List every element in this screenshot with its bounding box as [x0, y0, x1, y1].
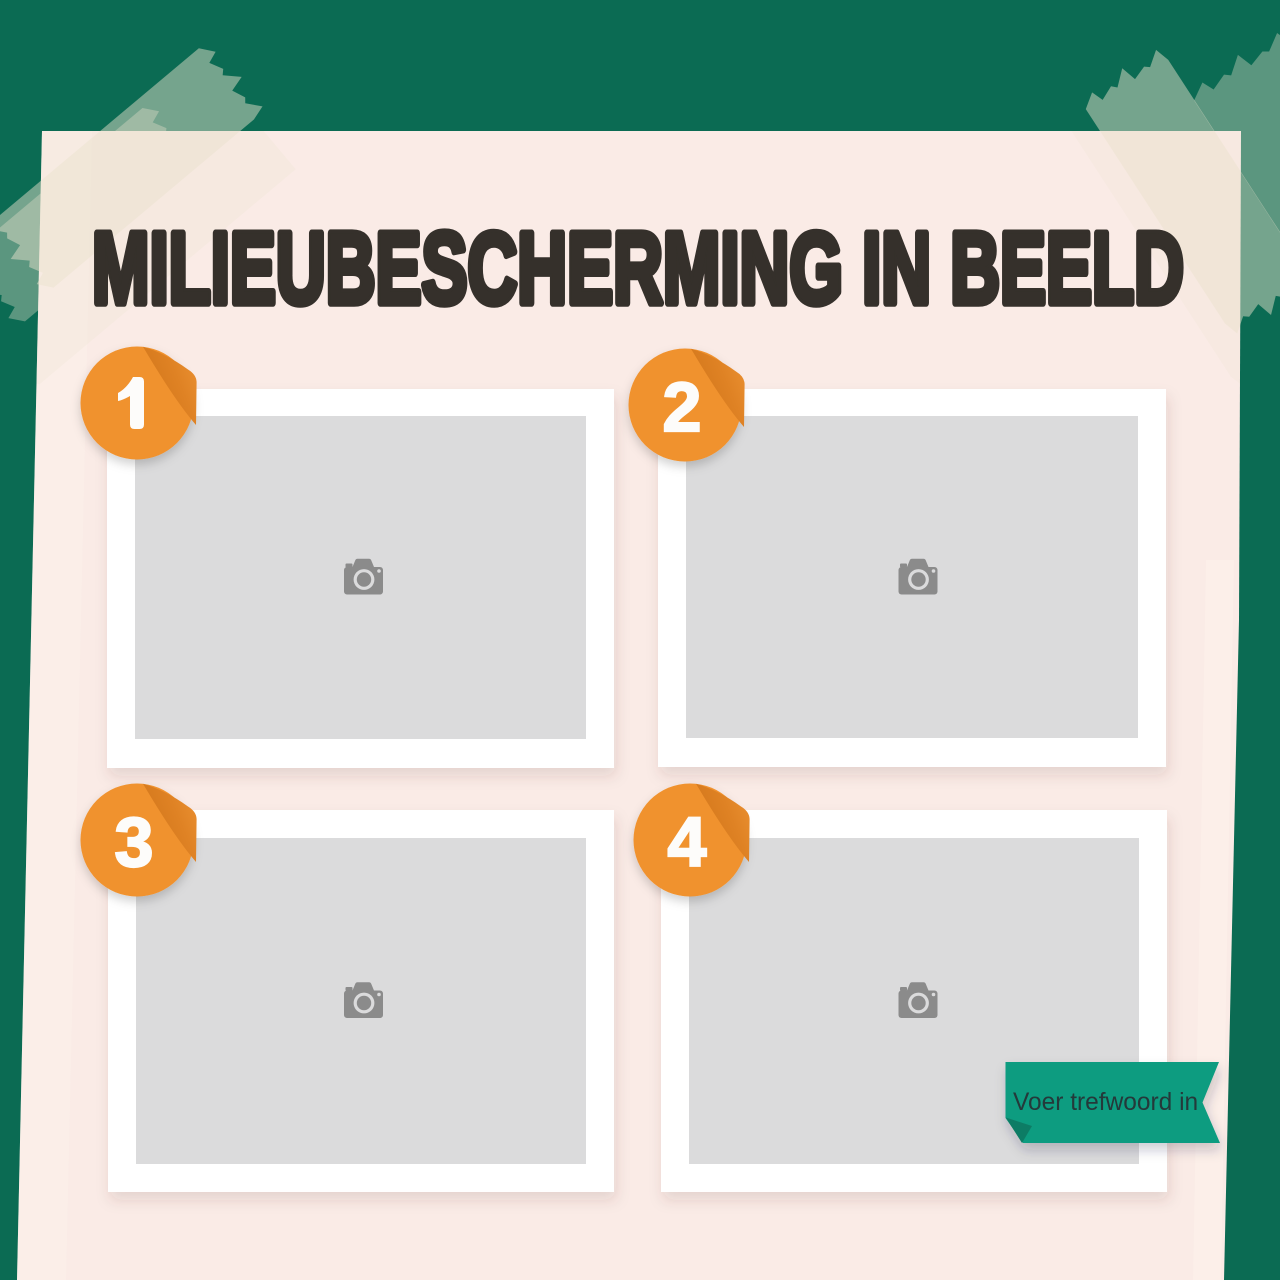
svg-text:Voer trefwoord in: Voer trefwoord in	[1013, 1089, 1198, 1116]
svg-text:MILIEUBESCHERMING IN BEELD: MILIEUBESCHERMING IN BEELD	[92, 212, 1184, 325]
svg-text:3: 3	[115, 803, 154, 881]
svg-text:4: 4	[668, 803, 707, 881]
svg-text:2: 2	[663, 368, 702, 446]
